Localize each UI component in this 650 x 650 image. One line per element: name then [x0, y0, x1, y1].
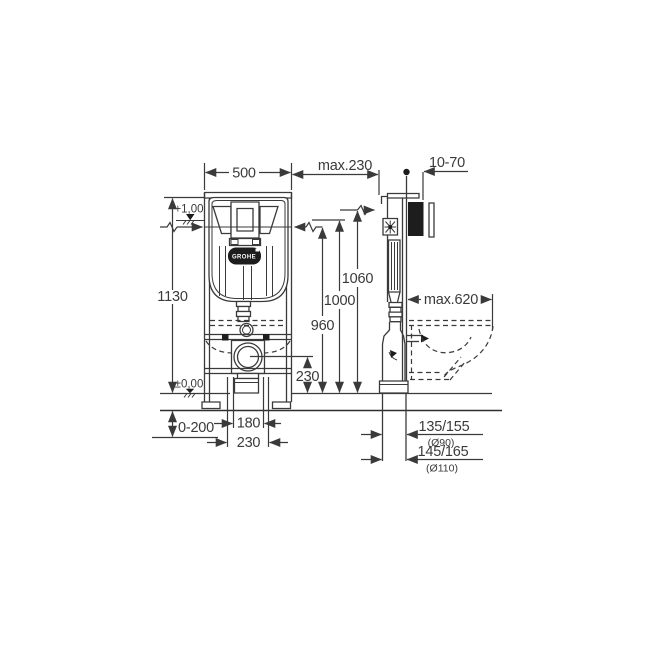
- dimension-960: 960: [311, 228, 335, 393]
- level-datum-icon: [186, 214, 195, 220]
- dim-foot-adjust-label: 0-200: [178, 420, 214, 436]
- dimension-width-500: 500: [205, 163, 292, 190]
- level-actuation-label: +1,00: [174, 204, 203, 216]
- dim-wall-offset-label: max.230: [318, 158, 372, 174]
- brand-label: GROHE: [232, 255, 256, 261]
- left-rod-nut: [222, 334, 229, 341]
- dimension-1000: 1000: [312, 220, 355, 393]
- technical-drawing-page: GROHE: [0, 0, 650, 650]
- dim-outlet2-label: 145/165: [417, 444, 468, 460]
- wc-bowl-outline: [409, 321, 493, 381]
- grohe-badge: GROHE: [228, 248, 261, 265]
- flow-arrow-icon: [390, 350, 397, 358]
- dim-outlet1-label: 135/155: [418, 419, 469, 435]
- dim-width-label: 500: [232, 166, 256, 182]
- flush-plate: [408, 202, 424, 236]
- dim-outlet2-dia-label: (Ø110): [426, 463, 458, 475]
- right-rod-nut: [263, 334, 270, 341]
- floor-datum-icon: [186, 389, 194, 394]
- inspection-shaft: [231, 202, 259, 238]
- dim-1000-label: 1000: [324, 293, 356, 309]
- reference-dot: [403, 169, 409, 175]
- dim-bowl-depth-label: max.620: [424, 292, 478, 308]
- dim-drain-height-label: 230: [296, 369, 320, 385]
- wall-panel: [429, 203, 434, 237]
- dim-230-bottom-label: 230: [237, 435, 261, 451]
- dimension-foot-adjust: 0-200: [173, 412, 215, 437]
- outlet-bend: [235, 379, 259, 394]
- right-foot: [273, 402, 291, 409]
- pipe-clamp: [380, 381, 409, 393]
- dimension-outlet-110: 145/165 (Ø110): [361, 444, 483, 475]
- dim-180-label: 180: [237, 416, 261, 432]
- level-actuation: +1,00: [174, 204, 204, 225]
- level-floor: ±0,00: [175, 379, 204, 398]
- left-foot: [202, 402, 220, 409]
- dim-1060-label: 1060: [342, 271, 374, 287]
- dimension-bowl-depth: max.620: [408, 292, 493, 330]
- front-view: GROHE: [202, 193, 292, 409]
- dim-960-label: 960: [311, 318, 335, 334]
- dim-plate-depth-label: 10-70: [429, 155, 465, 171]
- dimension-wall-offset: max.230: [293, 158, 380, 195]
- wall-anchor-icon: [383, 219, 398, 236]
- installation-frame-drawing: GROHE: [0, 0, 650, 650]
- dim-height-label: 1130: [157, 289, 188, 305]
- level-floor-label: ±0,00: [175, 379, 204, 391]
